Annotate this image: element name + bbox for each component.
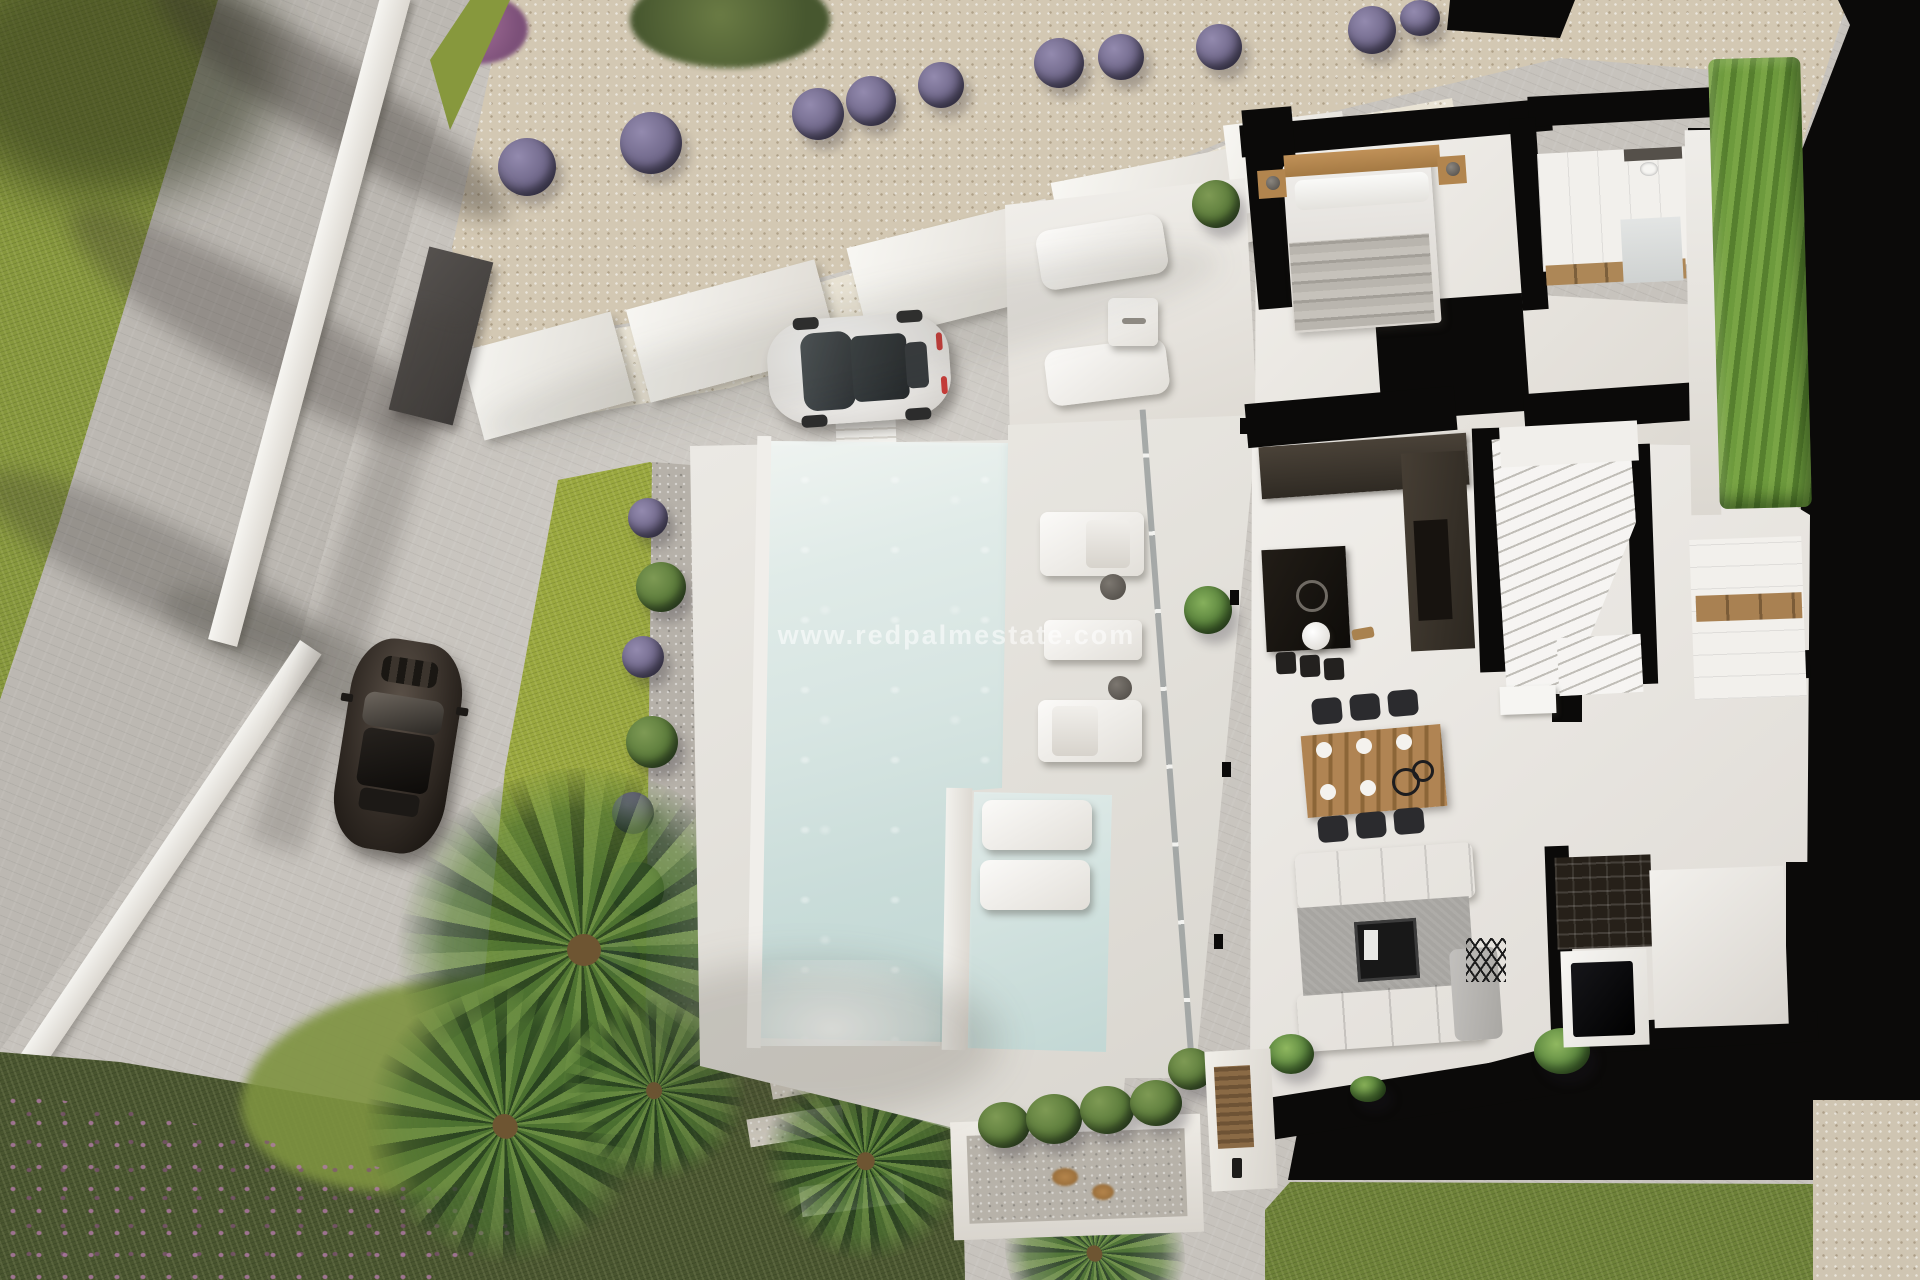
cut-wall: [1552, 694, 1582, 722]
facade-jamb: [1230, 590, 1239, 605]
side-table-round: [1100, 574, 1126, 600]
breakfast-table: [1302, 622, 1330, 650]
planter-dry-grass: [1092, 1184, 1114, 1200]
lavender-bush: [792, 88, 844, 140]
dining-chair: [1387, 689, 1419, 718]
lavender-bush: [918, 62, 964, 108]
car-wheel: [905, 407, 932, 421]
car-taillight: [941, 376, 948, 394]
place-setting: [1320, 784, 1336, 800]
aerial-render: www.redpalmestate.com: [0, 0, 1920, 1280]
car-mirror: [340, 693, 353, 703]
facade-jamb: [1214, 934, 1223, 949]
terrace-potted-plant: [1184, 586, 1232, 634]
car-roof-glass: [356, 727, 436, 796]
dining-chair: [1349, 693, 1381, 722]
planter-shrub: [1130, 1080, 1182, 1126]
chair-cushion: [1086, 520, 1130, 568]
indoor-plant: [1268, 1034, 1314, 1074]
stair-lower-flight: [1557, 634, 1644, 696]
planter-shrub: [1026, 1094, 1082, 1144]
place-setting: [1360, 780, 1376, 796]
television: [1571, 961, 1636, 1037]
bedside-lamp: [1446, 162, 1460, 176]
dining-chair: [1355, 811, 1387, 840]
spa-lounger: [982, 800, 1092, 850]
kitchen-appliance-tower: [1413, 519, 1452, 621]
shower-pan: [1620, 216, 1683, 283]
side-table-round: [1108, 676, 1132, 700]
indoor-plant: [1350, 1076, 1386, 1102]
facade-jamb: [1222, 762, 1231, 777]
place-setting: [1396, 734, 1412, 750]
lavender-bush: [1348, 6, 1396, 54]
green-shrub: [636, 562, 686, 612]
timber-gate: [1214, 1065, 1254, 1149]
green-shrub: [626, 716, 678, 768]
car-mirror: [456, 707, 469, 717]
ambient-shade: [620, 960, 1000, 1120]
table-slot: [1122, 318, 1146, 324]
garden-lamp: [1232, 1158, 1242, 1178]
lavender-bush: [622, 636, 664, 678]
lavender-bush: [1196, 24, 1242, 70]
car-wheel: [801, 414, 828, 428]
lavender-bush: [1034, 38, 1084, 88]
watermark-text: www.redpalmestate.com: [778, 620, 1136, 651]
lavender-bush: [1098, 34, 1144, 80]
dining-chair: [1393, 807, 1425, 836]
bar-stool: [1299, 654, 1320, 677]
cut-wall: [1786, 862, 1812, 1037]
store-room-floor: [1649, 866, 1788, 1029]
deck-plant: [1192, 180, 1240, 228]
facade-jamb: [1240, 418, 1250, 434]
bar-stool: [1323, 657, 1344, 680]
hall-wood-niche: [1696, 592, 1803, 622]
stair-landing: [1499, 420, 1639, 467]
planter-shrub: [1080, 1086, 1134, 1134]
lavender-bush: [498, 138, 556, 196]
planter-shrub: [978, 1102, 1030, 1148]
decor-sculpture: [1466, 938, 1506, 982]
spa-lounger: [980, 860, 1090, 910]
dining-chair: [1317, 815, 1349, 844]
place-setting: [1356, 738, 1372, 754]
bed-blanket: [1289, 233, 1435, 331]
bar-stool: [1275, 651, 1296, 674]
dining-chair: [1311, 697, 1343, 726]
centerpiece-rings: [1412, 760, 1434, 782]
lavender-bush: [620, 112, 682, 174]
bathroom-sink: [1640, 162, 1658, 176]
media-shelving: [1554, 854, 1653, 949]
lavender-bush: [1400, 0, 1440, 36]
hedge-east: [1708, 57, 1812, 509]
lavender-bush: [628, 498, 668, 538]
mirror-glint: [1364, 930, 1378, 960]
cooktop-ring: [1296, 580, 1328, 612]
bedside-lamp: [1266, 176, 1280, 190]
hall-door-leaf: [1500, 685, 1557, 715]
planter-dry-grass: [1052, 1168, 1078, 1186]
lavender-bush: [846, 76, 896, 126]
rear-gravel-pad: [1813, 1100, 1920, 1280]
chair-cushion: [1052, 706, 1098, 756]
place-setting: [1316, 742, 1332, 758]
